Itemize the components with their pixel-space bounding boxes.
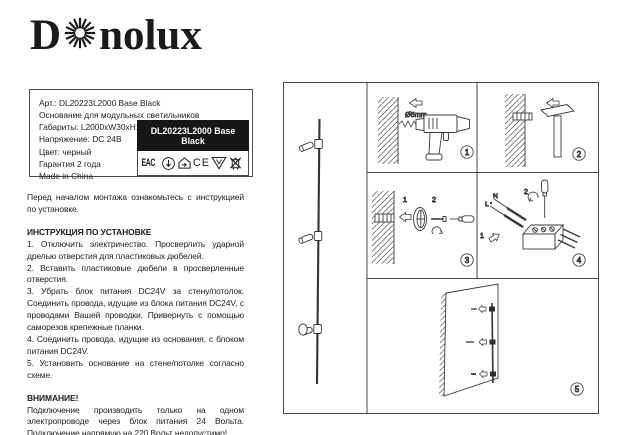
step1-badge: 1 — [461, 146, 473, 158]
warning-heading: ВНИМАНИЕ! — [27, 393, 244, 405]
intro-paragraph: Перед началом монтажа ознакомьтесь с инс… — [27, 192, 244, 216]
rod-clamp-bottom — [299, 324, 322, 335]
step1-drill-panel: Ø6mm 1 — [378, 97, 473, 164]
ce-mark-icon: CE — [193, 157, 210, 169]
step4-badge: 4 — [573, 254, 585, 266]
starburst-icon — [62, 10, 98, 56]
dowel-in-wall-icon — [375, 214, 394, 222]
step2-badge: 2 — [573, 148, 585, 160]
logo-letters-nolux: nolux — [99, 14, 202, 57]
terminal-block-icon — [523, 225, 580, 249]
step4-wiring-panel: N L 1 2 — [480, 180, 585, 266]
model-label: DL20223L2000 Base Black — [137, 120, 249, 151]
weee-crossed-bin-icon — [228, 156, 243, 171]
step-1-text: 1. Отключить электричество. Просверлить … — [27, 239, 244, 263]
indoor-use-house-icon — [177, 156, 192, 170]
instruction-text-column: Перед началом монтажа ознакомьтесь с инс… — [27, 192, 244, 435]
svg-text:3: 3 — [465, 256, 470, 265]
step2-hammer-panel: 2 — [505, 94, 585, 167]
donolux-logo: D nolux — [30, 10, 202, 57]
screwdriver-vertical-icon — [542, 180, 548, 218]
product-rod-illustration — [298, 119, 322, 384]
step3-badge: 3 — [461, 254, 473, 266]
step3-mark1: 1 — [403, 197, 407, 204]
step5-mounted-panel: 5 — [439, 284, 583, 397]
certification-icons: EAC CE — [137, 151, 249, 176]
model-label-block: DL20223L2000 Base Black EAC CE — [137, 120, 249, 176]
installation-diagram: Ø6mm 1 — [283, 82, 599, 414]
wire-n-label: N — [493, 193, 498, 200]
svg-text:1: 1 — [465, 148, 470, 157]
step4-mark2: 2 — [524, 189, 528, 196]
instruction-sheet: D nolux Арт.: DL20223L2000 Base Black Ос… — [0, 0, 620, 435]
screw-icon — [431, 217, 446, 222]
step-5-text: 5. Установить основание на стене/потолке… — [27, 358, 244, 382]
rotate-arrow — [432, 227, 441, 234]
step-2-text: 2. Вставить пластиковые дюбели в просвер… — [27, 263, 244, 287]
round-mounting-plate-icon — [414, 208, 427, 231]
svg-text:2: 2 — [577, 150, 582, 159]
step-4-text: 4. Соединить провода, идущие из основани… — [27, 334, 244, 358]
step-3-text: 3. Убрать блок питания DC24V за стену/по… — [27, 286, 244, 334]
eac-mark-icon: EAC — [143, 157, 154, 169]
step3-plate-panel: 1 2 3 — [372, 191, 474, 266]
wire-l-label: L — [485, 201, 489, 208]
protection-class-icon — [161, 156, 176, 171]
step4-mark1: 1 — [480, 233, 484, 240]
instructions-heading: ИНСТРУКЦИЯ ПО УСТАНОВКЕ — [27, 227, 244, 239]
product-info-box: Арт.: DL20223L2000 Base Black Основание … — [29, 89, 253, 177]
logo-letter-d: D — [30, 14, 61, 57]
svg-text:4: 4 — [577, 256, 582, 265]
spec-article: Арт.: DL20223L2000 Base Black — [39, 97, 199, 109]
dowel-icon — [513, 113, 532, 120]
svg-text:5: 5 — [575, 385, 580, 394]
screwdriver-icon — [450, 216, 474, 222]
hammer-icon — [541, 105, 574, 158]
triangle-cert-icon — [211, 156, 227, 170]
step5-badge: 5 — [571, 383, 583, 395]
step3-mark2: 2 — [432, 197, 436, 204]
wires — [490, 199, 526, 227]
warning-text: Подключение производить только на одном … — [27, 405, 244, 435]
